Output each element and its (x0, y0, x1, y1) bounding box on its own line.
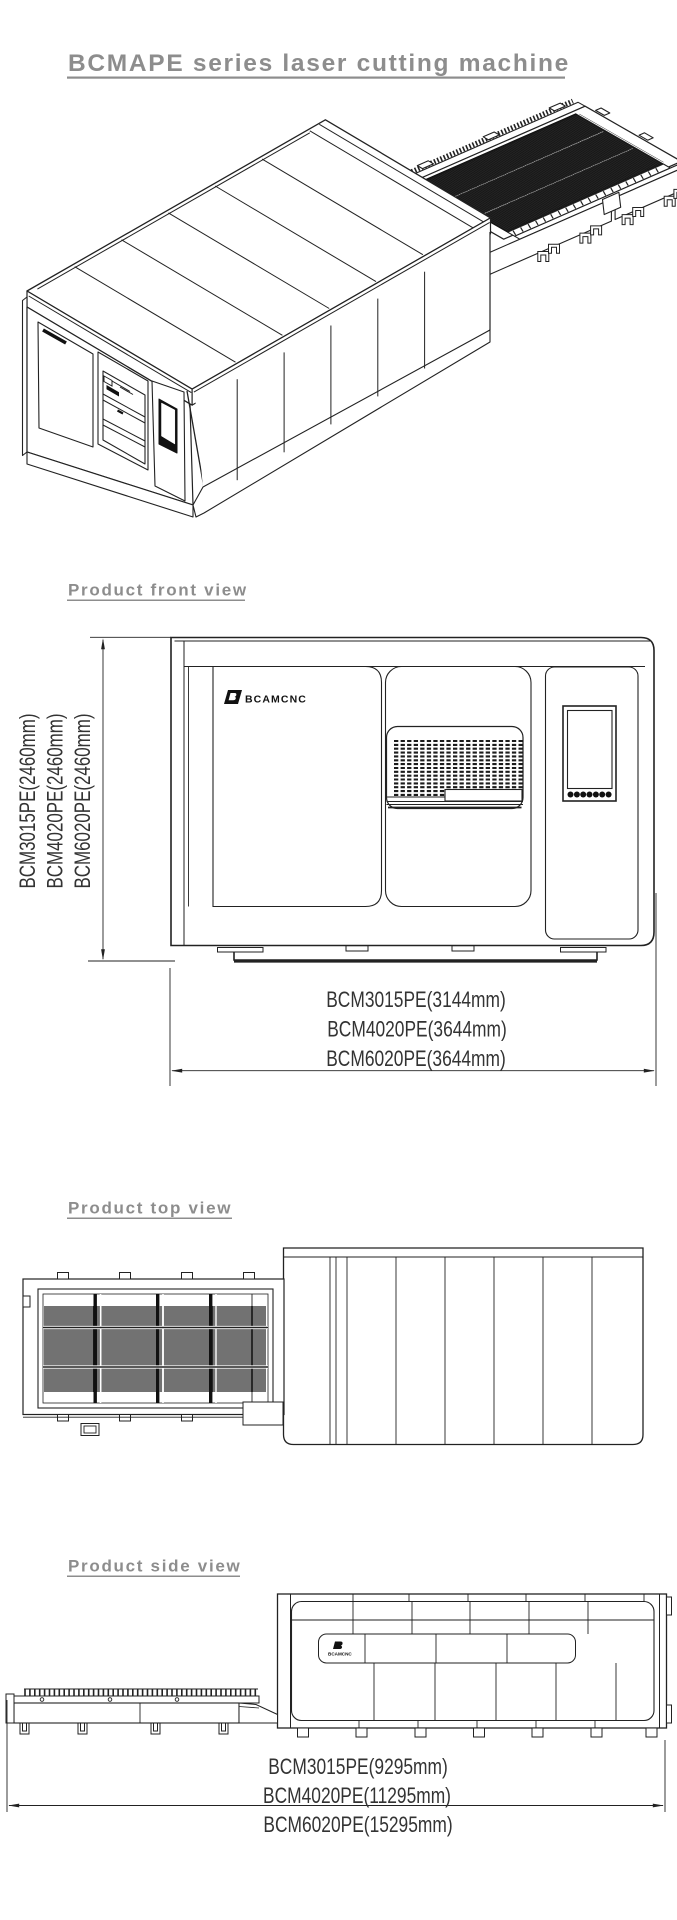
svg-text:BCAMCNC: BCAMCNC (245, 694, 307, 706)
svg-text:Product side view: Product side view (68, 1557, 241, 1576)
svg-text:BCM3015PE(2460mm): BCM3015PE(2460mm) (16, 713, 41, 888)
svg-text:BCM6020PE(2460mm): BCM6020PE(2460mm) (71, 713, 96, 888)
svg-text:Product front view: Product front view (68, 581, 248, 600)
svg-text:BCM3015PE(3144mm): BCM3015PE(3144mm) (326, 988, 506, 1012)
svg-text:Product top view: Product top view (68, 1199, 232, 1218)
svg-text:BCM4020PE(11295mm): BCM4020PE(11295mm) (263, 1784, 451, 1808)
svg-text:BCMAPE series laser cutting ma: BCMAPE series laser cutting machine (68, 50, 570, 77)
svg-text:BCM6020PE(3644mm): BCM6020PE(3644mm) (326, 1047, 506, 1071)
svg-text:BCAMCNC: BCAMCNC (328, 1652, 352, 1657)
svg-text:BCM4020PE(3644mm): BCM4020PE(3644mm) (327, 1018, 507, 1042)
svg-text:BCM3015PE(9295mm): BCM3015PE(9295mm) (268, 1755, 448, 1779)
svg-text:BCM4020PE(2460mm): BCM4020PE(2460mm) (43, 713, 68, 888)
svg-text:BCM6020PE(15295mm): BCM6020PE(15295mm) (263, 1813, 452, 1837)
